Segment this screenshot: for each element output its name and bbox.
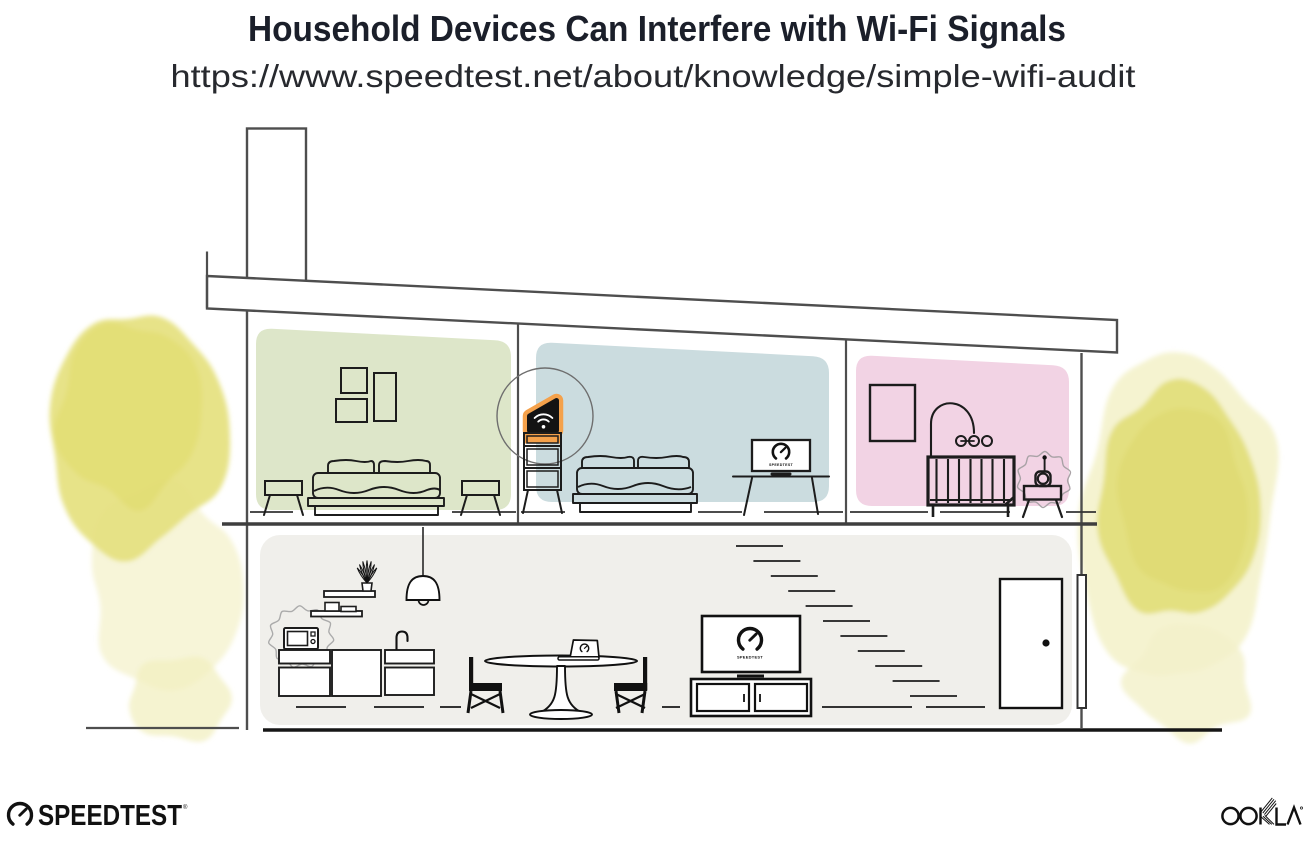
svg-text:SPEEDTEST: SPEEDTEST <box>769 463 794 467</box>
svg-text:SPEEDTEST: SPEEDTEST <box>737 655 763 660</box>
svg-text:Household Devices Can Interfer: Household Devices Can Interfere with Wi-… <box>248 8 1066 49</box>
svg-text:SPEEDTEST: SPEEDTEST <box>38 800 182 832</box>
svg-text:®: ® <box>183 804 188 811</box>
svg-text:https://www.speedtest.net/abou: https://www.speedtest.net/about/knowledg… <box>171 58 1136 94</box>
